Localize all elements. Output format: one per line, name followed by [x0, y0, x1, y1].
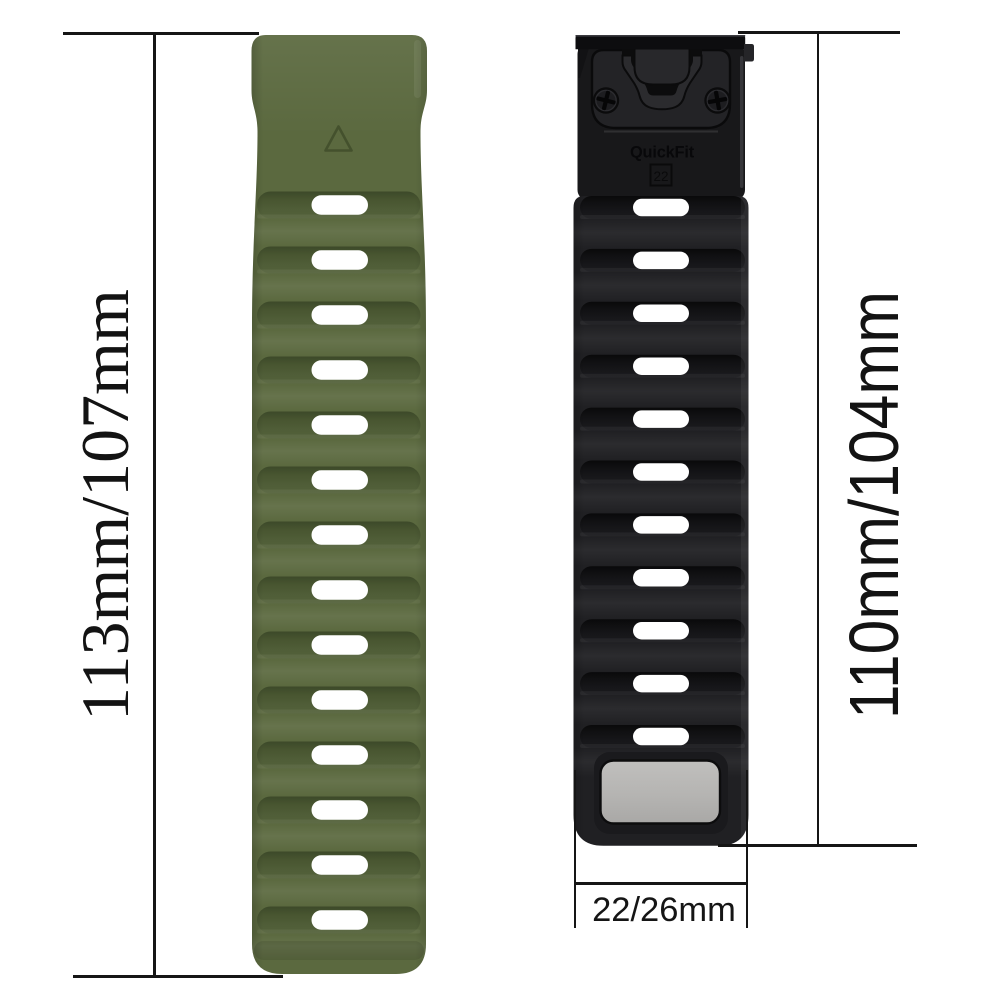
svg-text:22: 22: [653, 169, 668, 184]
svg-text:QuickFit: QuickFit: [630, 144, 695, 162]
